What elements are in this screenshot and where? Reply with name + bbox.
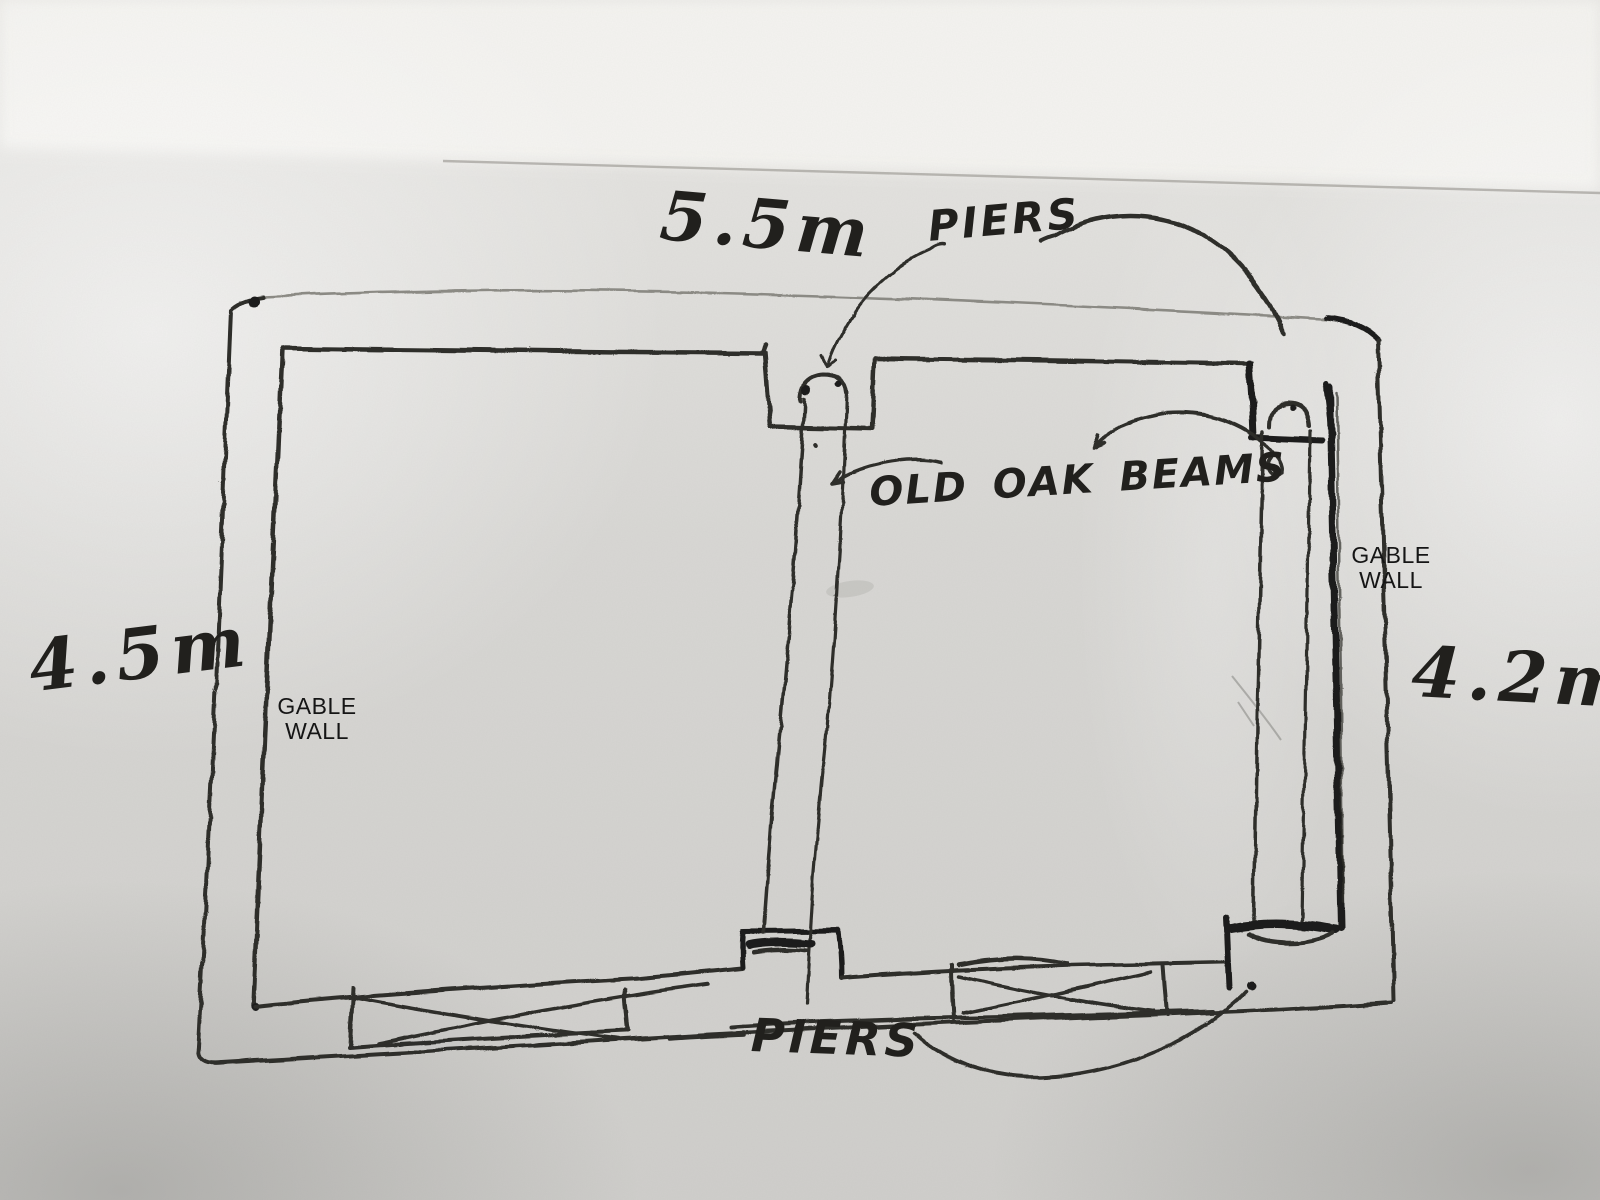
- gable-wall-label-left: GABLE WALL: [260, 694, 374, 744]
- ink-blob-corner: [248, 295, 259, 306]
- pier-ink-dot: [1288, 403, 1294, 409]
- dimension-right: 4.2m: [1410, 630, 1600, 725]
- beam-ink-speck: [813, 442, 818, 447]
- bottom-middle-pier: [748, 941, 810, 944]
- pier-ink-dot: [802, 385, 811, 394]
- brace-tick-3: [951, 963, 953, 1018]
- pier-ink-dot: [835, 381, 842, 388]
- piers-bottom-arrow-dot: [1246, 980, 1255, 989]
- inner-wall-end-post-top-right: [1249, 362, 1253, 436]
- gable-wall-label-right: GABLE WALL: [1334, 543, 1448, 593]
- piers-label-bottom: PIERS: [750, 1008, 923, 1068]
- floor-plan-sketch-photo: 5.5m PIERS OLD OAK BEAMS 4.5m 4.2m PIERS…: [0, 0, 1600, 1200]
